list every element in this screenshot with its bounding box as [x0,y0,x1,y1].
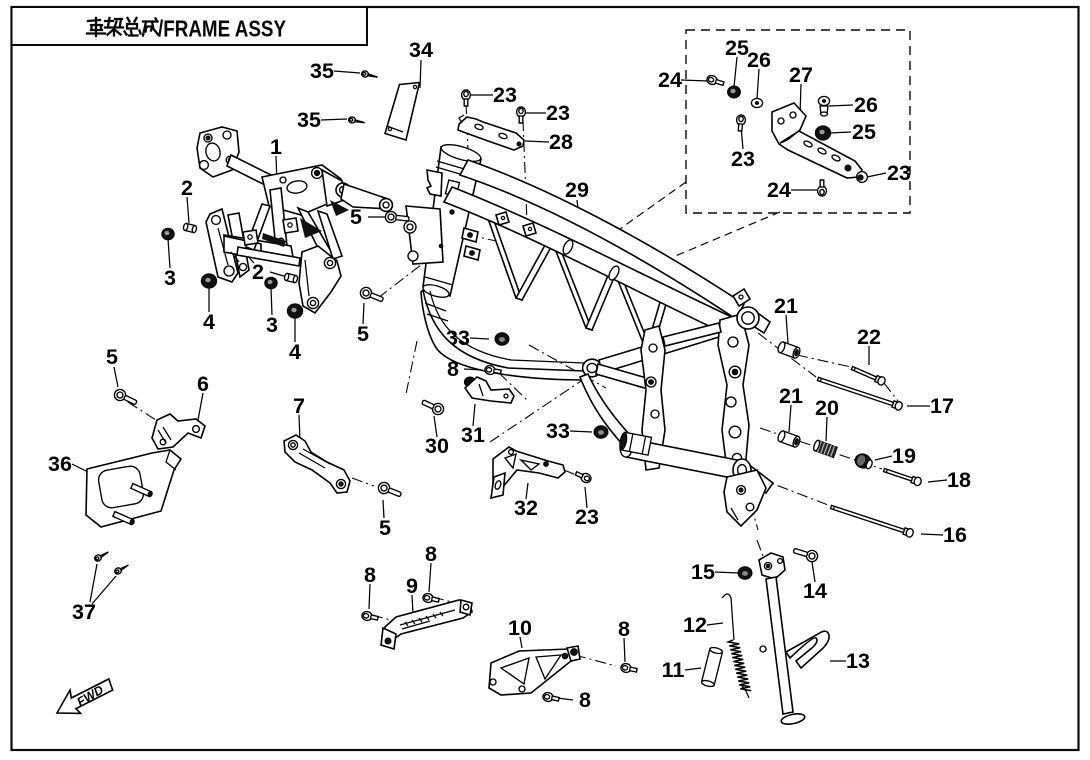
svg-text:20: 20 [815,396,839,420]
svg-text:4: 4 [203,310,215,334]
svg-text:14: 14 [803,579,827,603]
svg-text:3: 3 [266,313,278,337]
svg-text:24: 24 [658,68,682,92]
svg-text:24: 24 [767,178,791,202]
svg-text:5: 5 [379,516,391,540]
svg-text:7: 7 [293,394,305,418]
svg-text:25: 25 [725,36,749,60]
svg-text:23: 23 [546,101,570,125]
svg-text:26: 26 [747,48,771,72]
svg-text:33: 33 [546,419,570,443]
svg-text:23: 23 [887,161,911,185]
svg-text:29: 29 [565,178,589,202]
svg-text:6: 6 [197,372,209,396]
svg-text:21: 21 [779,384,803,408]
svg-text:36: 36 [48,452,72,476]
svg-text:18: 18 [947,468,971,492]
svg-text:22: 22 [857,325,881,349]
svg-text:5: 5 [106,345,118,369]
svg-text:32: 32 [514,496,538,520]
svg-text:23: 23 [493,83,517,107]
svg-text:28: 28 [549,130,573,154]
svg-text:/FRAME ASSY: /FRAME ASSY [158,16,286,42]
svg-text:1: 1 [270,135,282,159]
svg-text:17: 17 [930,394,954,418]
svg-text:25: 25 [852,120,876,144]
svg-text:19: 19 [892,444,916,468]
svg-text:35: 35 [297,108,321,132]
svg-text:11: 11 [662,658,685,682]
svg-text:21: 21 [774,294,798,318]
svg-text:9: 9 [406,574,418,598]
svg-text:2: 2 [181,176,193,200]
svg-text:34: 34 [409,38,433,62]
svg-text:10: 10 [508,616,532,640]
svg-text:3: 3 [164,266,176,290]
svg-text:27: 27 [789,63,813,87]
svg-text:8: 8 [618,617,630,641]
svg-text:5: 5 [357,322,369,346]
svg-text:15: 15 [691,560,715,584]
svg-text:12: 12 [683,613,707,637]
svg-text:5: 5 [350,205,362,229]
svg-text:23: 23 [575,505,599,529]
svg-text:35: 35 [310,59,334,83]
svg-text:2: 2 [252,260,264,284]
svg-text:4: 4 [289,340,301,364]
svg-text:31: 31 [461,423,485,447]
svg-text:8: 8 [364,563,376,587]
svg-text:16: 16 [943,523,967,547]
svg-text:8: 8 [425,542,437,566]
svg-text:23: 23 [731,147,755,171]
svg-text:30: 30 [425,434,449,458]
svg-text:26: 26 [854,93,878,117]
svg-text:8: 8 [579,688,591,712]
svg-text:13: 13 [846,649,870,673]
